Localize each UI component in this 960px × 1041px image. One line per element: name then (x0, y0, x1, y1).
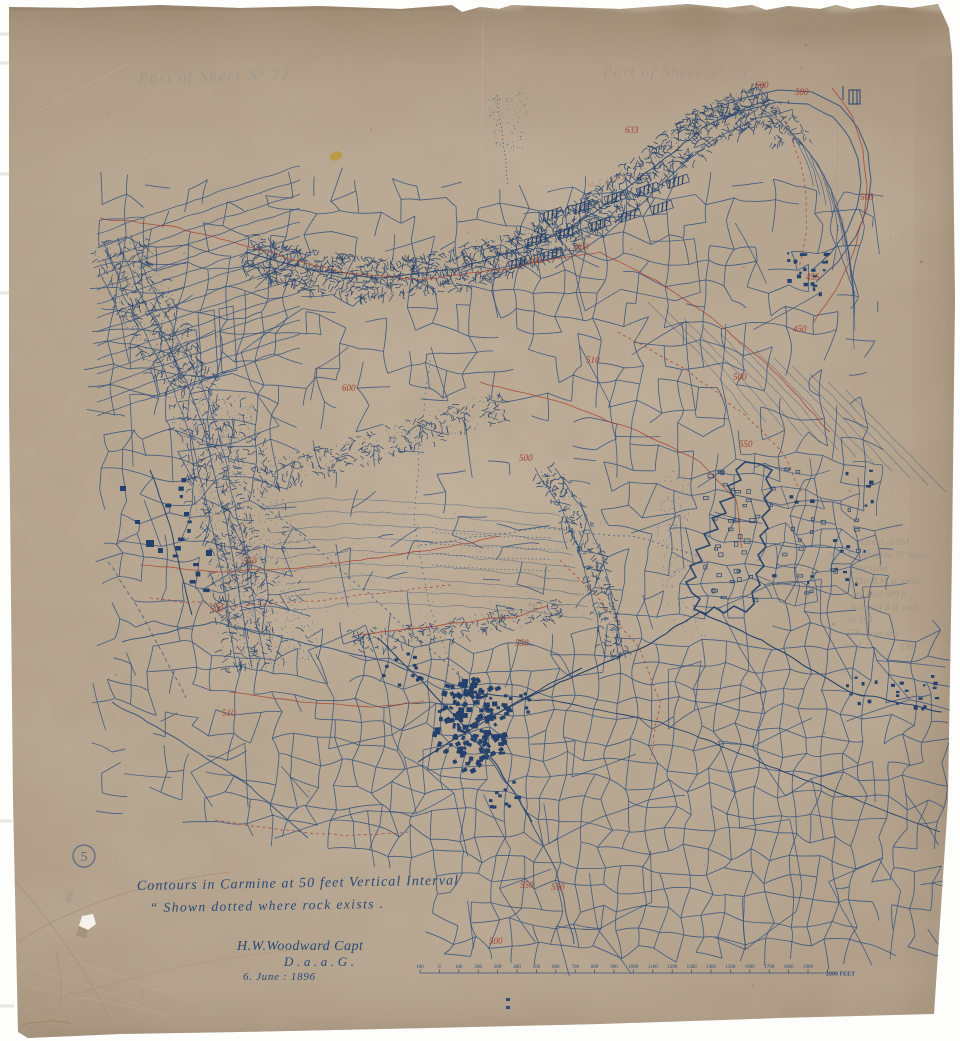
svg-text:450: 450 (793, 324, 807, 334)
svg-text:900: 900 (610, 965, 618, 970)
svg-text:600: 600 (342, 383, 356, 393)
svg-text:be 589: be 589 (848, 615, 873, 625)
svg-text:in line of R W wall: in line of R W wall (850, 602, 918, 612)
svg-text:2000 FEET: 2000 FEET (826, 972, 855, 978)
svg-text:Part of Sheet Nº 73.: Part of Sheet Nº 73. (602, 64, 754, 83)
svg-text:1900: 1900 (803, 965, 814, 970)
svg-text:578 above sea: 578 above sea (846, 628, 898, 638)
svg-text:1700: 1700 (764, 965, 775, 970)
svg-text:600: 600 (755, 80, 769, 90)
svg-text:455: 455 (806, 272, 820, 282)
svg-text:1500: 1500 (725, 965, 736, 970)
svg-text:sea level 589 ft: sea level 589 ft (852, 589, 907, 599)
svg-text:611: 611 (530, 255, 543, 265)
svg-text:1600: 1600 (745, 965, 756, 970)
svg-text:level: level (844, 641, 861, 651)
svg-text:600: 600 (552, 965, 560, 970)
svg-text:500: 500 (489, 936, 503, 946)
svg-text:550: 550 (739, 439, 753, 449)
svg-text:700: 700 (571, 965, 579, 970)
svg-text:500: 500 (210, 604, 224, 614)
svg-text:550: 550 (243, 556, 257, 566)
svg-text:500: 500 (733, 372, 747, 382)
svg-text:1400: 1400 (706, 965, 717, 970)
svg-text:Tunnel at BM: Tunnel at BM (860, 537, 910, 547)
svg-text:550: 550 (515, 638, 529, 648)
svg-text:300: 300 (494, 965, 502, 970)
svg-text:This B.M. is about: This B.M. is about (854, 576, 921, 586)
svg-text:633: 633 (625, 125, 639, 135)
svg-text:1000: 1000 (628, 965, 639, 970)
svg-text:510: 510 (222, 708, 236, 718)
svg-text:200: 200 (474, 965, 482, 970)
svg-text:D.a.a.G.: D.a.a.G. (283, 954, 358, 969)
svg-text:H.W.Woodward Capt: H.W.Woodward Capt (236, 939, 364, 954)
svg-text:1100: 1100 (648, 965, 658, 970)
svg-text:100: 100 (455, 965, 463, 970)
svg-text:580: 580 (795, 87, 809, 97)
svg-text:6. June : 1896: 6. June : 1896 (243, 971, 316, 983)
svg-text:the same: the same (856, 563, 888, 573)
svg-text:510: 510 (586, 355, 600, 365)
svg-text:550: 550 (551, 882, 565, 892)
svg-text:600: 600 (575, 242, 589, 252)
svg-text:500: 500 (860, 192, 874, 202)
svg-text:100: 100 (416, 965, 424, 970)
svg-text:400: 400 (513, 965, 521, 970)
svg-text:500: 500 (519, 453, 533, 463)
svg-text:1800: 1800 (784, 965, 795, 970)
svg-text:5: 5 (81, 850, 88, 865)
svg-text:550: 550 (520, 880, 534, 890)
svg-text:530: 530 (900, 642, 914, 652)
svg-text:1300: 1300 (687, 965, 698, 970)
svg-text:800: 800 (591, 965, 599, 970)
svg-text:500: 500 (533, 965, 541, 970)
svg-text:1200: 1200 (667, 965, 678, 970)
